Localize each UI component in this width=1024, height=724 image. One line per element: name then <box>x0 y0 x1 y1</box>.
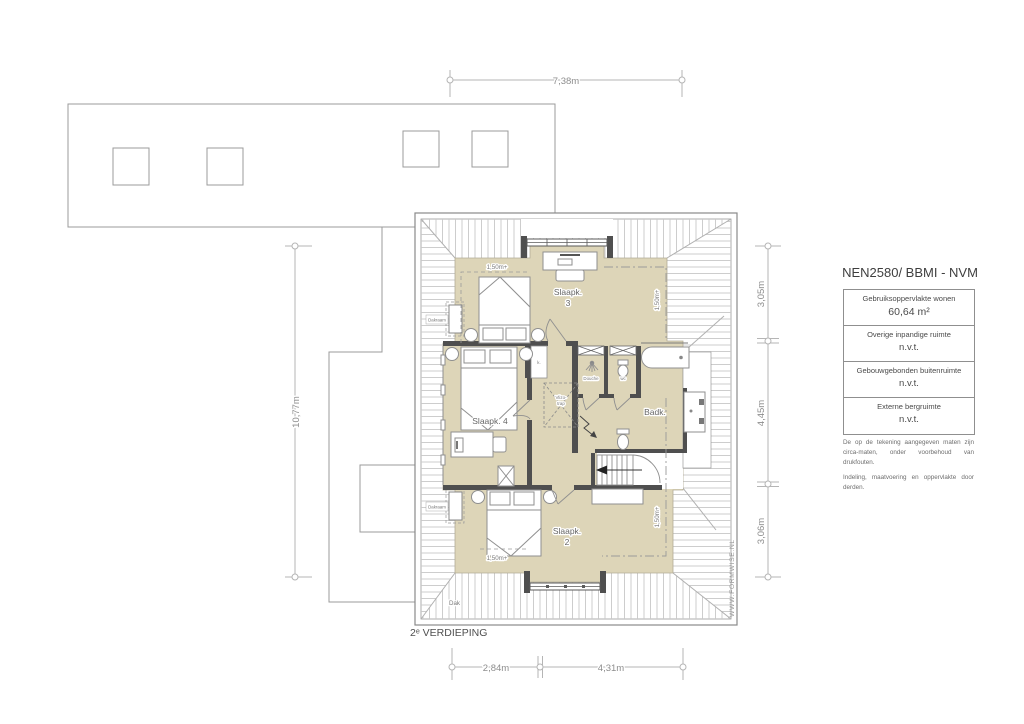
dimension-left-height: 10,77m <box>291 396 302 428</box>
room-label-slaapk2-number: 2 <box>565 537 570 547</box>
dakraam-label: Dakraam <box>428 318 446 323</box>
room-label-slaapk4: Slaapk. 4 <box>472 416 508 426</box>
bathtub-icon <box>642 347 690 368</box>
legend-row-overige-inpandige: Overige inpandige ruimte n.v.t. <box>844 326 974 362</box>
room-label-slaapk3: Slaapk. <box>554 287 582 297</box>
dimension-bottom-right: 4,31m <box>598 663 624 674</box>
legend-title: NEN2580/ BBMI - NVM <box>836 265 984 280</box>
legend-disclaimer: De op de tekening aangegeven maten zijn … <box>843 438 974 499</box>
disclaimer-line-2: Indeling, maatvoering en oppervlakte doo… <box>843 473 974 493</box>
dakraam-label: Dakraam <box>428 505 446 510</box>
legend-row-label: Gebruiksoppervlakte wonen <box>844 294 974 303</box>
toilet-wc-icon <box>618 360 628 377</box>
closet: k. <box>531 346 547 378</box>
cupboard-icon <box>498 466 514 486</box>
headroom-label-slaapk3: 1,50m+ <box>487 264 508 271</box>
floorplan-page: Dakraam Dakraam <box>0 0 1024 724</box>
disclaimer-line-1: De op de tekening aangegeven maten zijn … <box>843 438 974 467</box>
roof-label-dak: Dak <box>449 600 461 607</box>
legend-row-gebouwgebonden: Gebouwgebonden buitenruimte n.v.t. <box>844 362 974 398</box>
legend-row-value: 60,64 m² <box>844 306 974 318</box>
dimension-right-middle: 4,45m <box>756 400 767 426</box>
legend-row-value: n.v.t. <box>844 342 974 353</box>
dimension-top-width: 7,38m <box>553 76 579 87</box>
vlizotrap-label-line2: trap <box>557 401 565 406</box>
room-label-slaapk2: Slaapk. <box>553 526 581 536</box>
rooflight-square <box>113 148 149 185</box>
room-label-wc: wc <box>620 376 626 381</box>
legend-row-gebruiksoppervlakte: Gebruiksoppervlakte wonen 60,64 m² <box>844 290 974 326</box>
vlizotrap-label-line1: Vlizo- <box>556 395 568 400</box>
headroom-label-right-bottom: 1,50m+ <box>654 506 661 527</box>
room-label-douche: Douche <box>583 376 599 381</box>
headroom-label-slaapk2: 1,50m+ <box>487 555 508 562</box>
legend-row-value: n.v.t. <box>844 378 974 389</box>
legend-table: Gebruiksoppervlakte wonen 60,64 m² Overi… <box>843 289 975 435</box>
dimension-right-bottom: 3,06m <box>756 518 767 544</box>
closet-label: k. <box>537 360 540 365</box>
legend-row-externe-bergruimte: Externe bergruimte n.v.t. <box>844 398 974 434</box>
rooflight-square <box>207 148 243 185</box>
dimension-bottom-left: 2,84m <box>483 663 509 674</box>
rooflight-square <box>472 131 508 167</box>
legend-row-label: Gebouwgebonden buitenruimte <box>844 366 974 375</box>
watermark-text: WWW.FORMWISE.NL <box>729 539 736 617</box>
rooflight-square <box>403 131 439 167</box>
legend-row-label: Overige inpandige ruimte <box>844 330 974 339</box>
dimension-right-top: 3,05m <box>756 281 767 307</box>
dresser-icon <box>592 489 643 504</box>
legend-row-value: n.v.t. <box>844 414 974 425</box>
room-label-slaapk3-number: 3 <box>566 298 571 308</box>
legend-row-label: Externe bergruimte <box>844 402 974 411</box>
washbasin-icon <box>684 392 705 432</box>
headroom-label-right-top: 1,50m+ <box>654 289 661 310</box>
room-label-badkamer: Badk. <box>644 407 666 417</box>
toilet-badkamer-icon <box>617 429 629 450</box>
floor-title: 2ᵉ VERDIEPING <box>410 627 487 639</box>
